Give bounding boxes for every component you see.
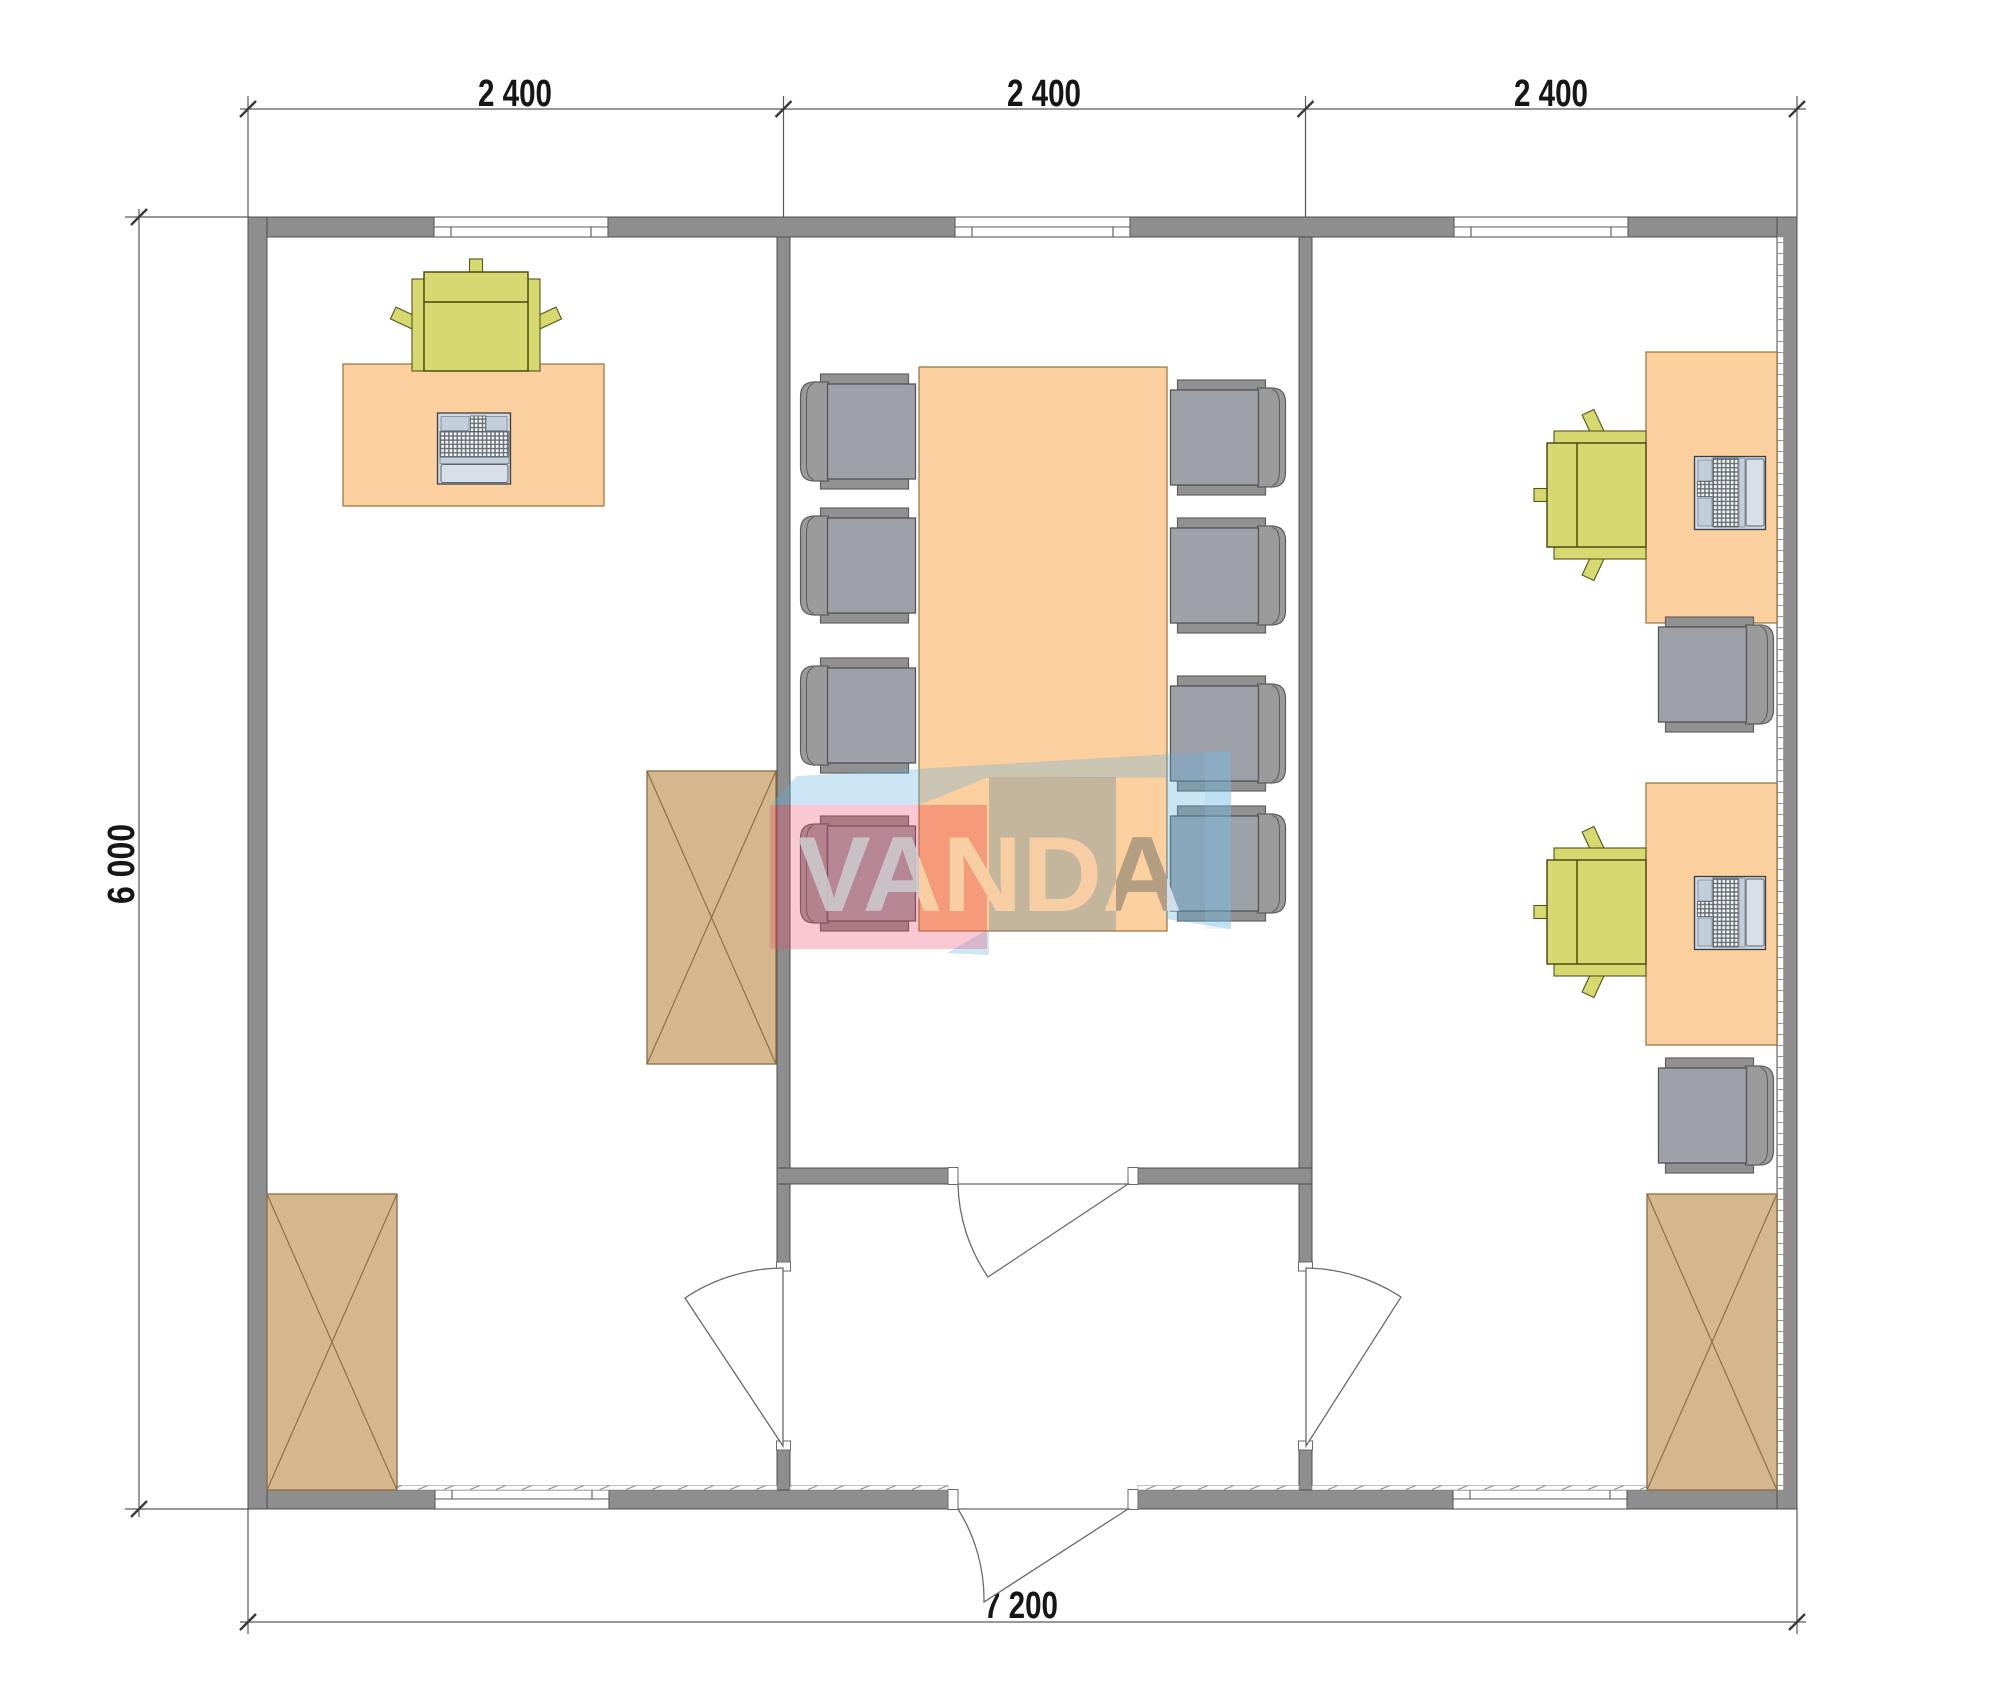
- svg-text:2 400: 2 400: [1007, 73, 1081, 115]
- svg-text:6 000: 6 000: [101, 824, 143, 904]
- svg-text:2 400: 2 400: [1514, 73, 1588, 115]
- svg-text:2 400: 2 400: [478, 73, 552, 115]
